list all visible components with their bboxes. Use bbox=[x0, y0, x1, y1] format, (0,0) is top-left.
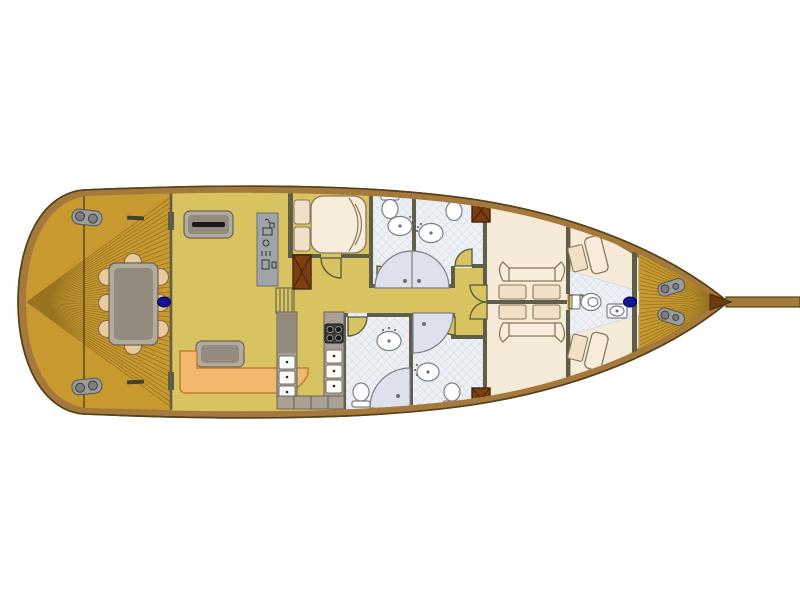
winch bbox=[71, 208, 102, 226]
corridor-strip bbox=[455, 268, 483, 335]
bowsprit bbox=[726, 297, 800, 307]
galley-lower-cabinets bbox=[277, 396, 344, 409]
dining-table bbox=[109, 263, 158, 345]
pillow bbox=[499, 285, 526, 299]
pillow bbox=[294, 200, 310, 224]
mizzen-mast-mark bbox=[158, 297, 171, 307]
winch bbox=[71, 377, 102, 395]
bed-headboard bbox=[502, 323, 562, 336]
salon-sideboard bbox=[184, 211, 233, 238]
pillow bbox=[533, 305, 560, 319]
salon-table bbox=[196, 341, 244, 367]
sink-icon bbox=[607, 304, 627, 318]
bed-headboard bbox=[502, 268, 562, 281]
nav-station bbox=[257, 213, 278, 286]
pillow bbox=[499, 305, 526, 319]
locker-x-hatch bbox=[293, 255, 311, 289]
deck-plan-canvas bbox=[0, 0, 800, 600]
toilet-icon bbox=[352, 383, 370, 407]
mid-double-cabin bbox=[294, 196, 366, 253]
main-mast-mark bbox=[624, 297, 637, 307]
galley-stove bbox=[325, 324, 343, 343]
sideboard-hatch-bar bbox=[192, 222, 225, 227]
pillow bbox=[533, 285, 560, 299]
toilet-icon bbox=[572, 294, 601, 311]
yacht-deck-plan bbox=[0, 0, 800, 600]
fore-cabin-bulkhead bbox=[566, 190, 570, 294]
pillow bbox=[294, 227, 310, 251]
companionway-steps bbox=[276, 288, 294, 313]
